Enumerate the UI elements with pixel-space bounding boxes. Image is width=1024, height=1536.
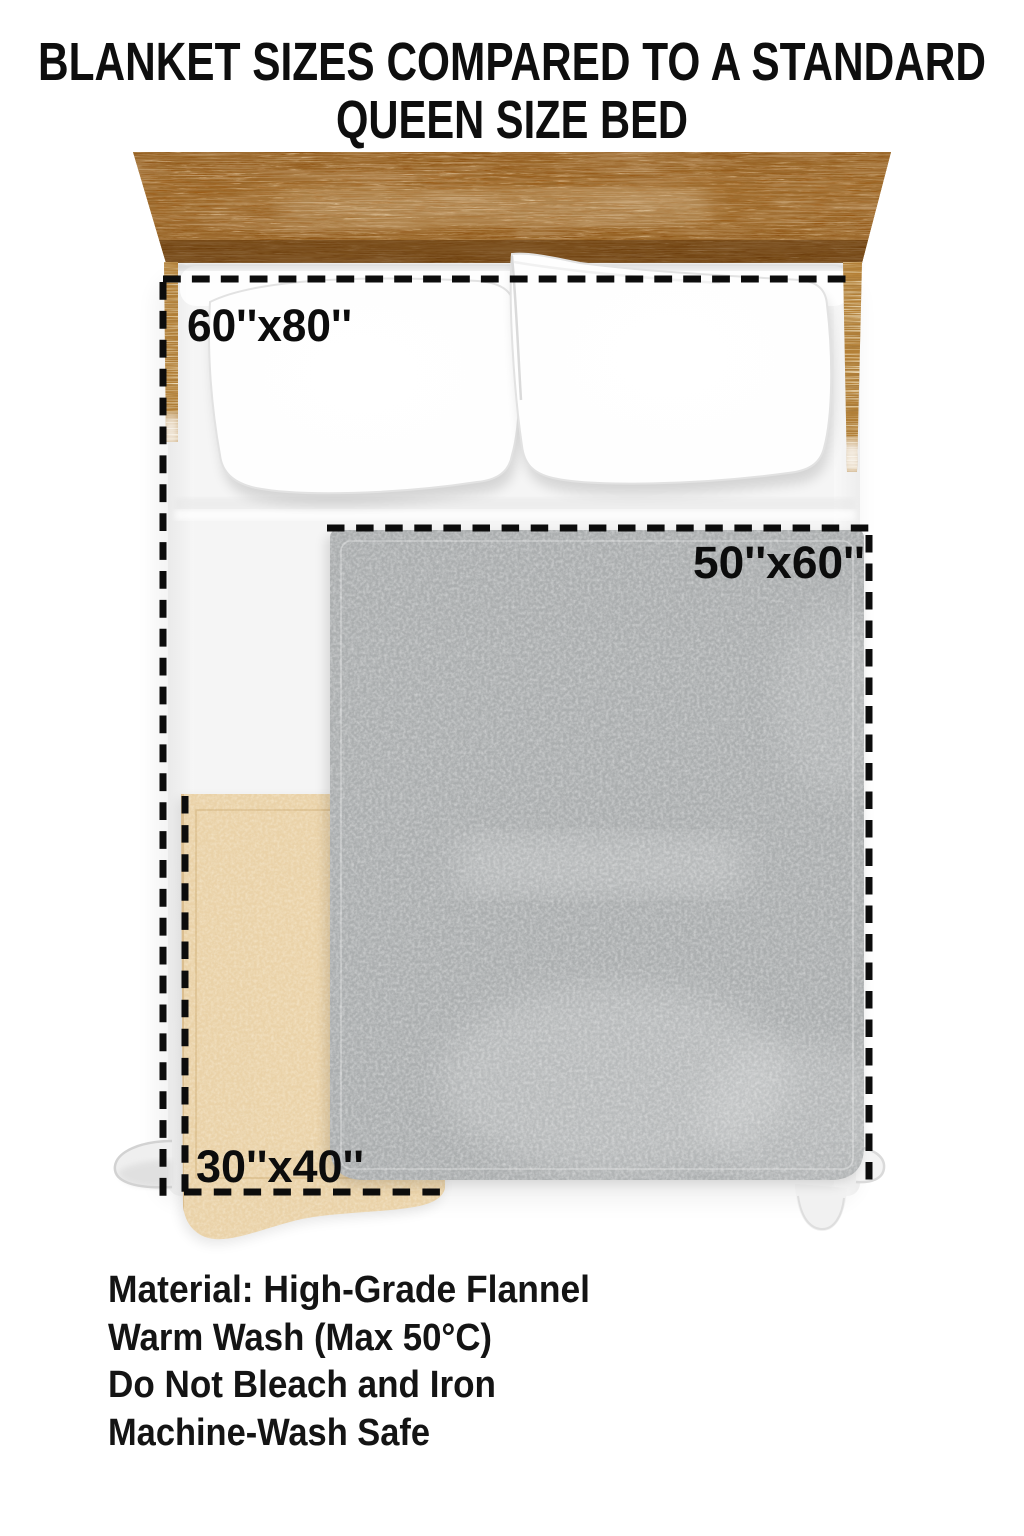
svg-text:30''x40'': 30''x40'' xyxy=(196,1141,364,1192)
svg-text:60''x80'': 60''x80'' xyxy=(187,300,352,351)
svg-text:Warm Wash (Max 50°C): Warm Wash (Max 50°C) xyxy=(108,1317,492,1359)
svg-text:QUEEN SIZE BED: QUEEN SIZE BED xyxy=(336,90,688,150)
svg-text:Machine-Wash Safe: Machine-Wash Safe xyxy=(108,1412,430,1454)
svg-text:50''x60'': 50''x60'' xyxy=(693,537,865,588)
svg-text:BLANKET SIZES COMPARED TO A ST: BLANKET SIZES COMPARED TO A STANDARD xyxy=(38,32,986,92)
svg-text:Material: High-Grade Flannel: Material: High-Grade Flannel xyxy=(108,1269,590,1311)
svg-text:Do Not Bleach and Iron: Do Not Bleach and Iron xyxy=(108,1364,496,1406)
